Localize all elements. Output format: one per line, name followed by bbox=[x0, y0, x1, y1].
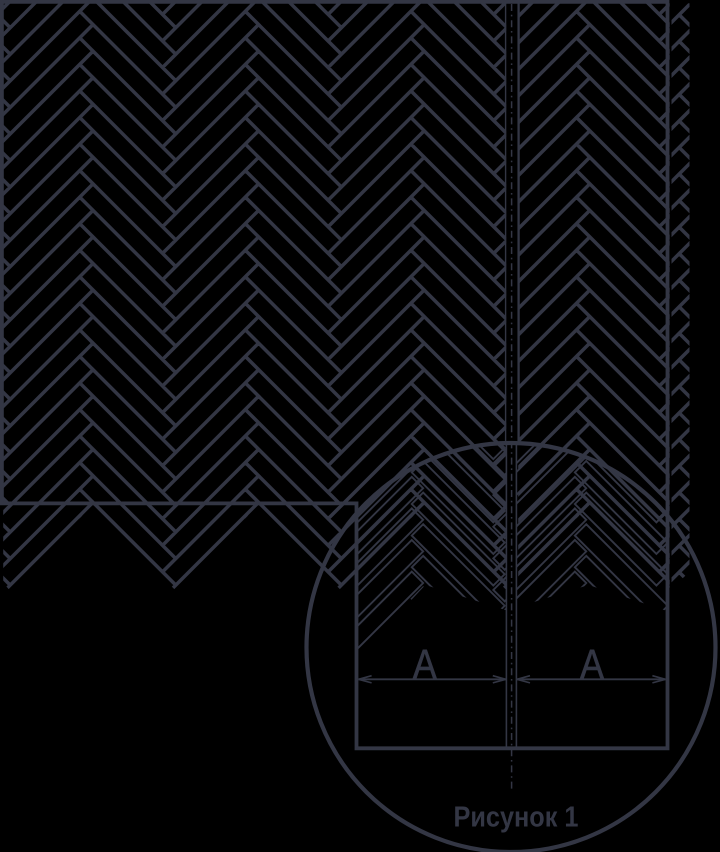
svg-text:Рисунок 1: Рисунок 1 bbox=[454, 802, 579, 834]
svg-text:А: А bbox=[413, 641, 437, 688]
svg-text:А: А bbox=[580, 641, 604, 688]
